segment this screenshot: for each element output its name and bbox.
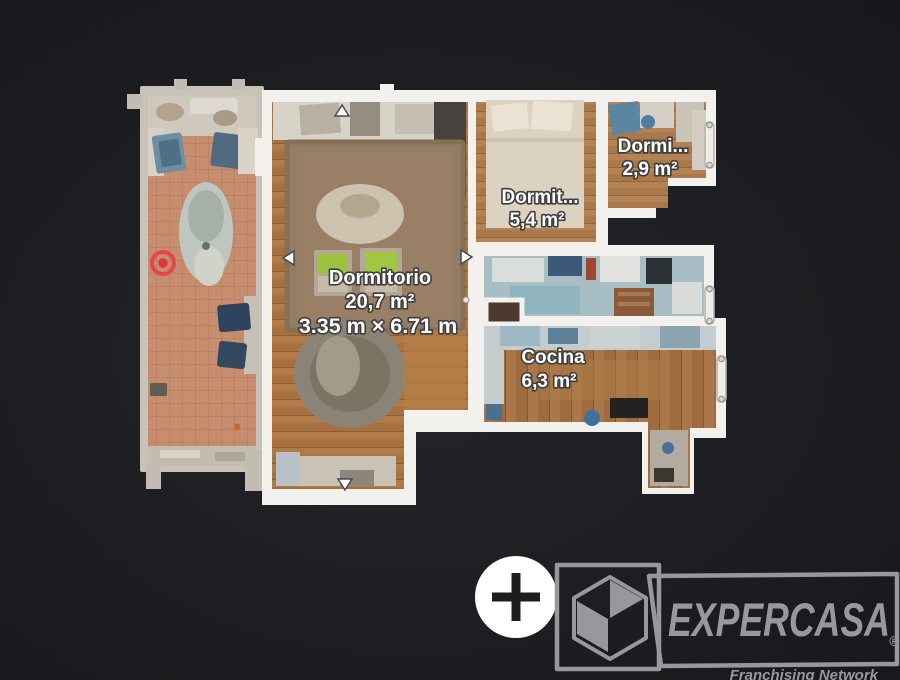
room-cocina[interactable] xyxy=(484,326,716,488)
dormitorio-3-area: 2,9 m² xyxy=(623,159,678,180)
dormitorio-2-label: Dormit... xyxy=(501,187,578,208)
door-marker xyxy=(717,356,726,402)
dormitorio-2-area: 5,4 m² xyxy=(510,210,565,231)
cocina-area: 6,3 m² xyxy=(522,371,577,392)
dormitorio-dimensions: 3.35 m × 6.71 m xyxy=(299,314,457,338)
cocina-label: Cocina xyxy=(521,347,585,368)
closet xyxy=(486,300,522,324)
logo-registered-mark: ® xyxy=(889,633,900,649)
logo-brand-text: EXPERCASA xyxy=(668,593,890,646)
room-bathroom[interactable] xyxy=(484,256,704,324)
door-marker xyxy=(705,122,714,168)
logo-tagline: Franchising Network xyxy=(730,667,879,680)
expercasa-logo: EXPERCASA ® Franchising Network xyxy=(557,565,900,680)
dormitorio-area: 20,7 m² xyxy=(346,291,415,313)
room-terrace[interactable] xyxy=(127,79,264,491)
floor-plan-canvas[interactable]: Dormitorio 20,7 m² 3.35 m × 6.71 m Dormi… xyxy=(0,0,900,680)
cube-icon xyxy=(574,577,646,659)
door-marker xyxy=(705,286,714,324)
dormitorio-label: Dormitorio xyxy=(329,267,431,289)
floor-plan-viewer: Dormitorio 20,7 m² 3.35 m × 6.71 m Dormi… xyxy=(0,0,900,680)
dormitorio-3-label: Dormi... xyxy=(618,136,689,157)
zoom-in-button[interactable] xyxy=(475,556,557,638)
